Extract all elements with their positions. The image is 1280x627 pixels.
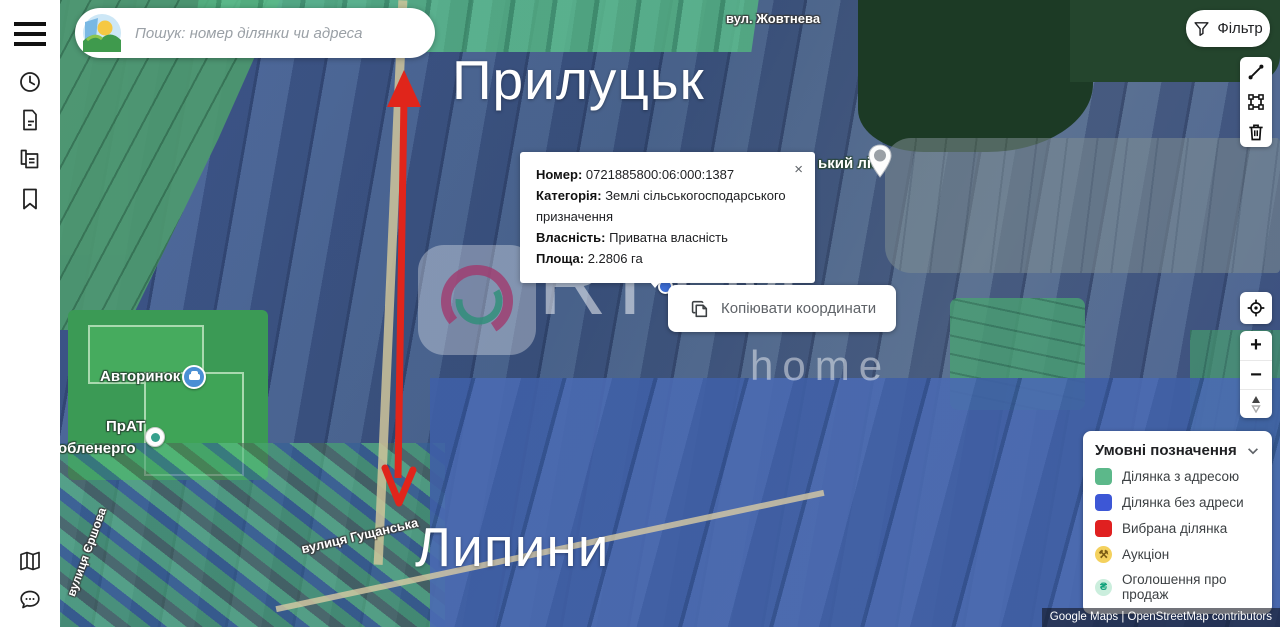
history-clock-icon bbox=[18, 70, 42, 94]
tilt-arrows-icon bbox=[1248, 395, 1264, 413]
sidebar-map-button[interactable] bbox=[0, 541, 60, 581]
search-bar bbox=[75, 8, 435, 58]
map-attribution: Google Maps | OpenStreetMap contributors bbox=[1042, 608, 1280, 627]
poi-label-prat: ПрАТ bbox=[106, 418, 145, 435]
zoom-panel: + − bbox=[1240, 331, 1272, 418]
poi-marker-energy[interactable] bbox=[145, 427, 165, 447]
popup-pointer bbox=[645, 276, 665, 298]
document-icon bbox=[18, 108, 42, 132]
legend-item-auction: ⚒ Аукціон bbox=[1095, 546, 1260, 563]
filter-button[interactable]: Фільтр bbox=[1186, 10, 1270, 47]
my-location-button[interactable] bbox=[1240, 293, 1272, 323]
measure-icon bbox=[1246, 62, 1266, 82]
hamburger-menu-icon bbox=[13, 20, 47, 48]
trash-icon bbox=[1246, 122, 1266, 142]
tilt-control-button[interactable] bbox=[1240, 389, 1272, 418]
zoom-in-button[interactable]: + bbox=[1240, 331, 1272, 360]
delete-drawing-button[interactable] bbox=[1240, 117, 1272, 147]
legend-item-no-address: Ділянка без адреси bbox=[1095, 494, 1260, 511]
legend-item-selected: Вибрана ділянка bbox=[1095, 520, 1260, 537]
popup-field-category: Категорія: Землі сільськогосподарського … bbox=[536, 185, 799, 227]
sidebar-history-button[interactable] bbox=[0, 62, 60, 102]
legend-item-sale: ₴ Оголошення про продаж bbox=[1095, 572, 1260, 602]
sidebar-copies-button[interactable] bbox=[0, 139, 60, 179]
draw-tools-panel bbox=[1240, 57, 1272, 147]
hamburger-menu-button[interactable] bbox=[0, 14, 60, 54]
city-label-prylutsk: Прилуцьк bbox=[452, 48, 705, 112]
green-square-swatch bbox=[1095, 468, 1112, 485]
legend-title: Умовні позначення bbox=[1095, 442, 1237, 459]
map-icon bbox=[18, 549, 42, 573]
car-icon bbox=[189, 374, 200, 380]
poi-label-avtorynok: Авторинок bbox=[100, 368, 180, 385]
popup-close-button[interactable]: × bbox=[790, 158, 807, 181]
street-label-zhovtneva: вул. Жовтнева bbox=[726, 11, 820, 26]
parcel-info-popup: × Номер: 0721885800:06:000:1387 Категорі… bbox=[520, 152, 815, 283]
auction-gavel-icon: ⚒ bbox=[1095, 546, 1112, 563]
site-logo-icon bbox=[83, 14, 121, 52]
copy-coordinates-button[interactable]: Копіювати координати bbox=[668, 285, 896, 332]
popup-field-area: Площа: 2.2806 га bbox=[536, 248, 799, 269]
copy-documents-icon bbox=[18, 147, 42, 171]
search-input[interactable] bbox=[133, 24, 421, 43]
sidebar-bookmarks-button[interactable] bbox=[0, 179, 60, 219]
poi-marker-car-market[interactable] bbox=[182, 365, 206, 389]
locate-target-icon bbox=[1246, 298, 1266, 318]
poi-label-oblenergo: обленерго bbox=[58, 440, 136, 457]
forest-pin-icon[interactable] bbox=[866, 143, 894, 181]
map-texture-tan-right bbox=[885, 138, 1280, 273]
blue-square-swatch bbox=[1095, 494, 1112, 511]
energy-dot-icon bbox=[151, 433, 160, 442]
legend-item-with-address: Ділянка з адресою bbox=[1095, 468, 1260, 485]
copy-icon bbox=[688, 298, 710, 320]
zoom-out-button[interactable]: − bbox=[1240, 360, 1272, 389]
hryvnia-icon: ₴ bbox=[1095, 579, 1112, 596]
sidebar-documents-button[interactable] bbox=[0, 100, 60, 140]
chat-icon bbox=[18, 588, 42, 612]
bookmark-icon bbox=[19, 187, 41, 211]
legend-panel: Умовні позначення Ділянка з адресою Діля… bbox=[1083, 431, 1272, 614]
city-label-lypyny: Липини bbox=[415, 515, 609, 579]
funnel-icon bbox=[1193, 20, 1210, 37]
select-area-button[interactable] bbox=[1240, 87, 1272, 117]
map-texture-forest bbox=[858, 0, 1093, 152]
popup-field-ownership: Власність: Приватна власність bbox=[536, 227, 799, 248]
select-area-icon bbox=[1246, 92, 1266, 112]
measure-distance-button[interactable] bbox=[1240, 57, 1272, 87]
locate-panel bbox=[1240, 292, 1272, 324]
chevron-down-icon bbox=[1246, 444, 1260, 458]
red-square-swatch bbox=[1095, 520, 1112, 537]
legend-header[interactable]: Умовні позначення bbox=[1095, 442, 1260, 459]
popup-field-number: Номер: 0721885800:06:000:1387 bbox=[536, 164, 799, 185]
sidebar-chat-button[interactable] bbox=[0, 580, 60, 620]
left-sidebar bbox=[0, 0, 60, 627]
